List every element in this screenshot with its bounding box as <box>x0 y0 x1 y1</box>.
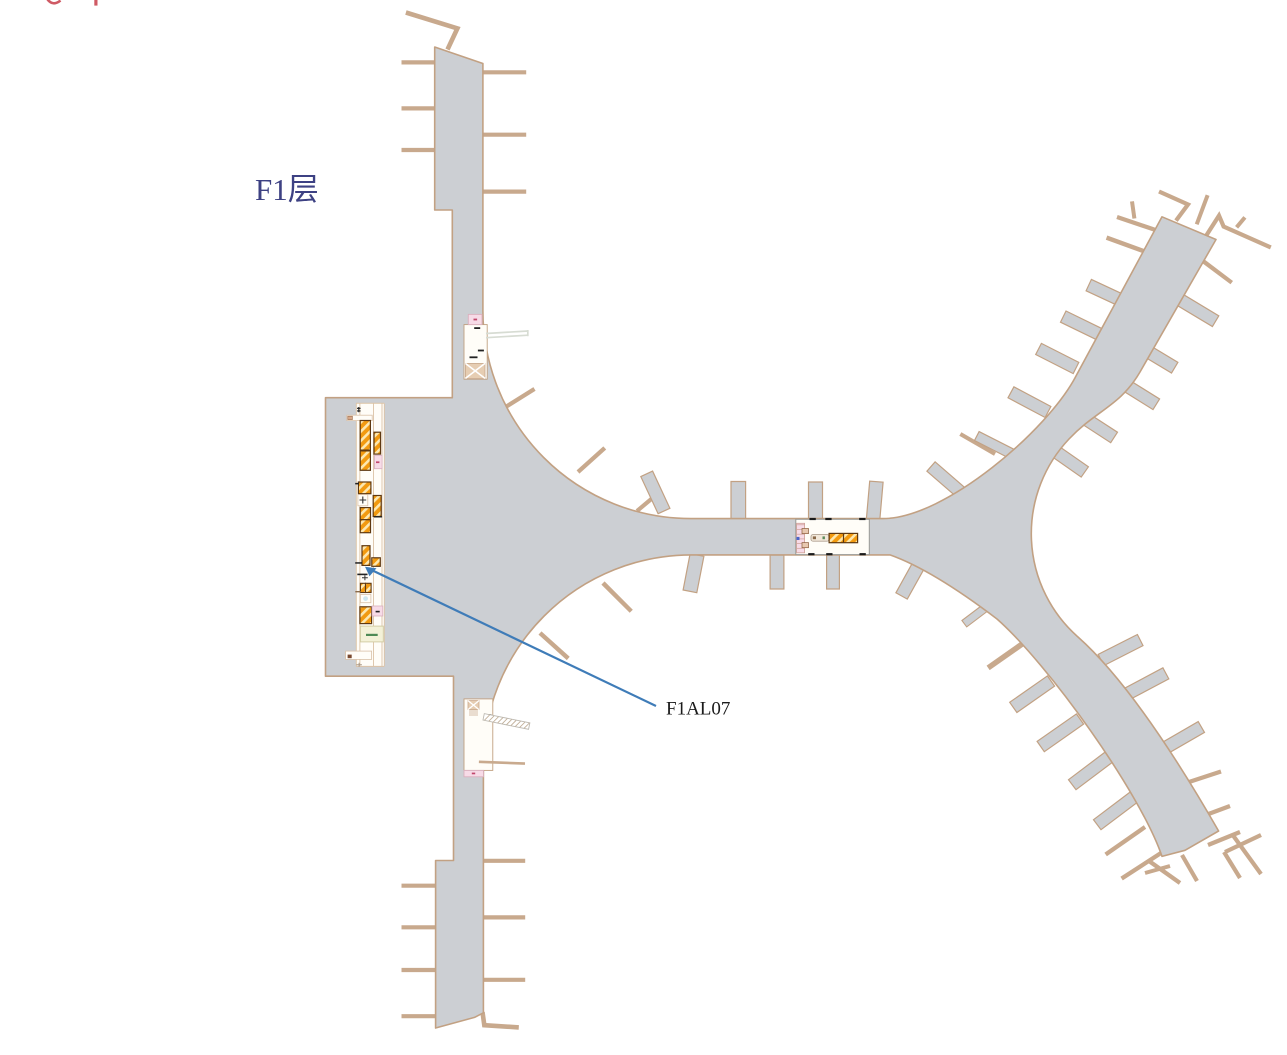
svg-text:F1层: F1层 <box>255 172 319 207</box>
svg-text:F1AL07: F1AL07 <box>666 699 730 720</box>
